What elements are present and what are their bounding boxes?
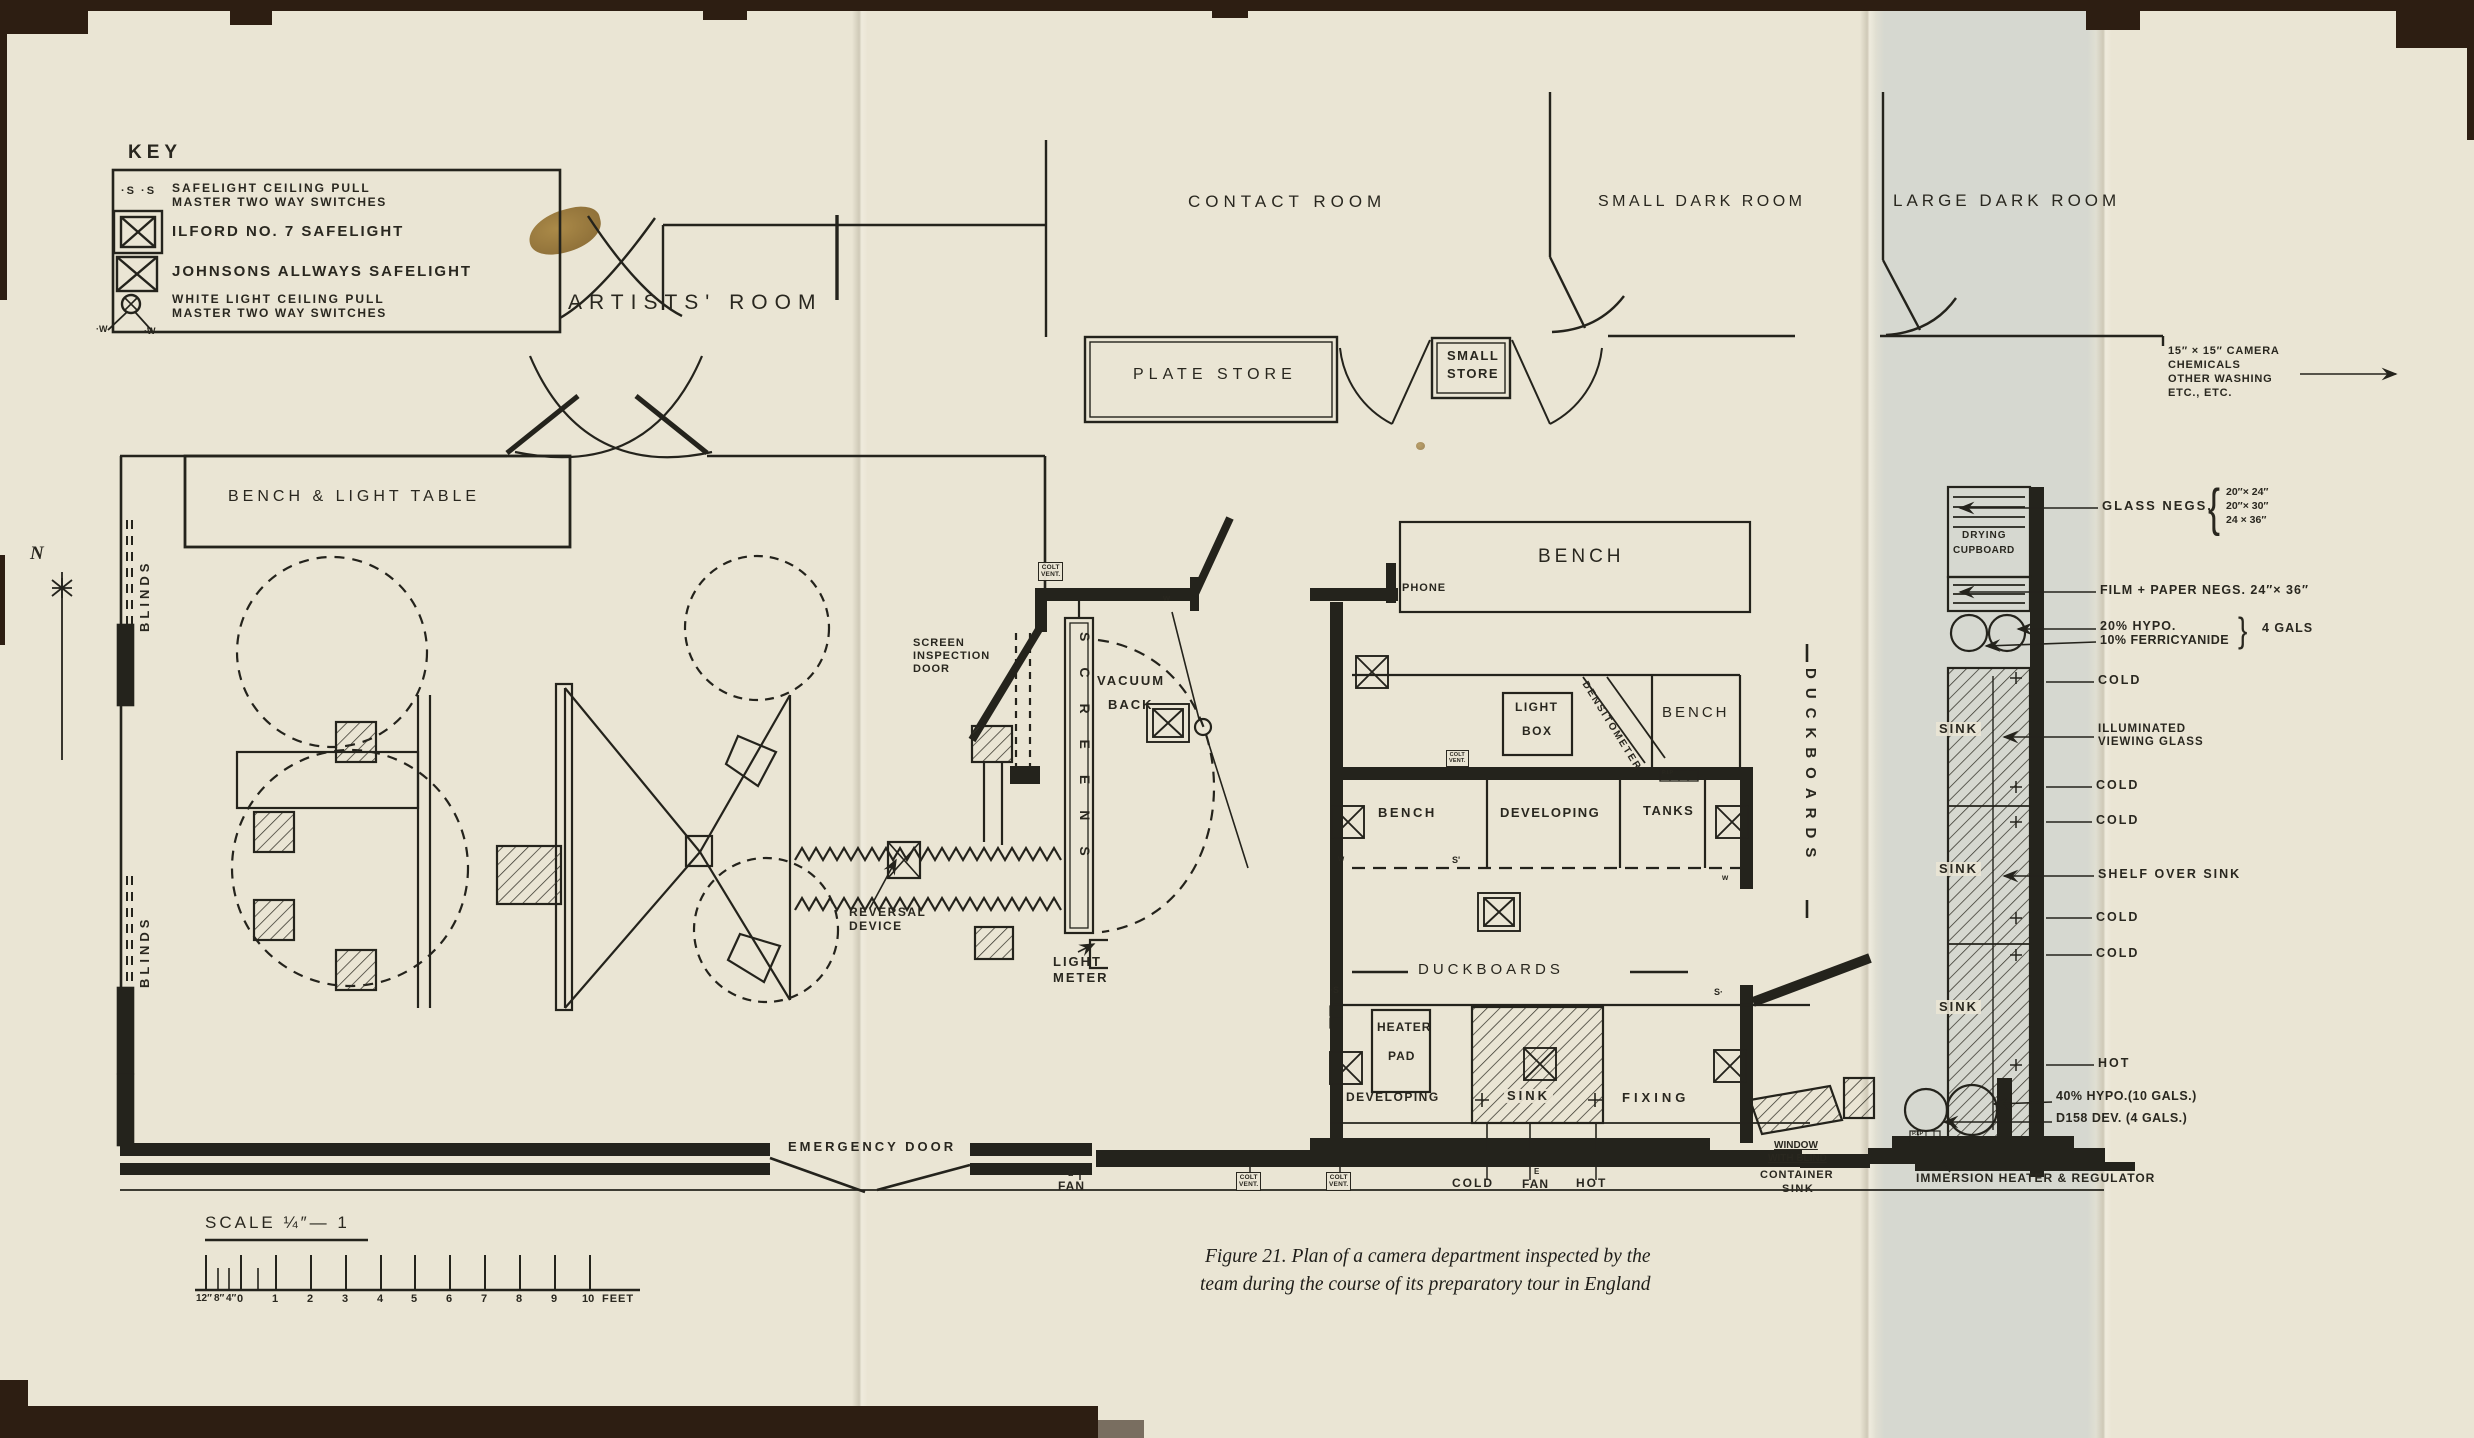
- figure-caption-line1: Figure 21. Plan of a camera department i…: [1205, 1246, 1651, 1267]
- blinds-upper: BLINDS: [138, 528, 154, 632]
- scale-tick: 5: [411, 1294, 417, 1306]
- vacuum-back: VACUUM: [1097, 674, 1165, 688]
- container-sink: CONTAINER: [1760, 1170, 1834, 1182]
- colt-vent-box: COLTVENT.: [1038, 562, 1063, 581]
- note-chemicals: CHEMICALS: [2168, 360, 2241, 372]
- bench-mid: BENCH: [1378, 806, 1437, 820]
- hot-tap: HOT: [1576, 1177, 1607, 1190]
- pipe-box: P.I.P: [1912, 1132, 1923, 1138]
- illuminated-glass-2: VIEWING GLASS: [2098, 736, 2204, 748]
- room-small-store: SMALL: [1447, 349, 1499, 363]
- developing-sink-room: DEVELOPING: [1346, 1091, 1440, 1104]
- colt-vent-box: COLTVENT.: [1326, 1172, 1351, 1191]
- key-switch-symbol: ·S ·S: [121, 186, 156, 198]
- walls-stores: [560, 92, 2163, 424]
- shelf-over-sink: SHELF OVER SINK: [2098, 868, 2241, 882]
- illuminated-glass: ILLUMINATED: [2098, 723, 2186, 735]
- scale-ruler: [195, 1240, 640, 1290]
- bench-top: BENCH: [1538, 547, 1625, 568]
- room-large-dark: LARGE DARK ROOM: [1893, 192, 2120, 210]
- glass-negs: GLASS NEGS.: [2102, 499, 2213, 513]
- scale-tick: 0: [237, 1294, 243, 1306]
- scale-tick: 8″: [214, 1294, 224, 1305]
- room-small-dark: SMALL DARK ROOM: [1598, 193, 1806, 210]
- scale-tick: 12″: [196, 1294, 212, 1305]
- switch-w-small: w: [1338, 855, 1344, 864]
- scale-tick: 10: [582, 1294, 594, 1306]
- room-contact: CONTACT ROOM: [1188, 193, 1386, 211]
- cold-tap: COLD: [1452, 1177, 1494, 1190]
- key-w-mark: ·W: [144, 327, 156, 337]
- pipe-box: P.I.P: [1662, 771, 1673, 777]
- north-label: N: [30, 544, 44, 565]
- film-paper-negs: FILM + PAPER NEGS. 24″× 36″: [2100, 584, 2309, 598]
- light-meter: LIGHT: [1053, 955, 1102, 969]
- note-camera-size: 15″ × 15″ CAMERA: [2168, 346, 2280, 358]
- window-label: WINDOW: [1774, 1141, 1818, 1152]
- fan-e-left: E: [1068, 1170, 1073, 1179]
- door-artists-room-top: [507, 356, 712, 457]
- room-plate-store: PLATE STORE: [1133, 366, 1297, 383]
- light-meter-2: METER: [1053, 971, 1109, 985]
- light-box-2: BOX: [1522, 725, 1553, 738]
- key-johnsons: JOHNSONS ALLWAYS SAFELIGHT: [172, 264, 472, 280]
- cold-3: COLD: [2096, 814, 2139, 828]
- key-ilford: ILFORD NO. 7 SAFELIGHT: [172, 224, 404, 240]
- key-master-switches: MASTER TWO WAY SWITCHES: [172, 196, 387, 209]
- screen-inspection-door-2: INSPECTION: [913, 651, 990, 663]
- scale-title: SCALE ¼″— 1: [205, 1214, 350, 1232]
- brace-hypo: }: [2238, 612, 2247, 650]
- duckboards-horizontal: DUCKBOARDS: [1418, 962, 1564, 978]
- drying-cupboard-2: CUPBOARD: [1953, 546, 2015, 557]
- emergency-door: EMERGENCY DOOR: [788, 1140, 956, 1154]
- screens-label: SCREENS: [1066, 632, 1092, 922]
- scale-tick: 9: [551, 1294, 557, 1306]
- camera-equipment: [232, 556, 1248, 1010]
- fan-left: FAN: [1058, 1180, 1085, 1193]
- right-column-fixtures: [1892, 487, 2135, 1177]
- key-white-light: WHITE LIGHT CEILING PULL: [172, 293, 385, 306]
- room-small-store-2: STORE: [1447, 367, 1499, 381]
- cold-2: COLD: [2096, 779, 2139, 793]
- key-title: KEY: [128, 143, 182, 164]
- drying-cupboard: DRYING: [1962, 531, 2007, 542]
- colt-vent-box: COLTVENT.: [1236, 1172, 1261, 1191]
- developing-tanks: DEVELOPING: [1500, 806, 1600, 820]
- heater-pad: HEATER: [1377, 1021, 1431, 1034]
- switch-s: ·S: [1330, 986, 1339, 996]
- brace-glass-negs: {: [2208, 480, 2220, 536]
- figure-caption-line2: team during the course of its preparator…: [1200, 1274, 1650, 1295]
- switch-w: w: [1163, 594, 1170, 604]
- sink-2: SINK: [1936, 862, 1981, 876]
- switch-w-small: w: [1722, 874, 1728, 883]
- plan-line-art: [0, 0, 2474, 1438]
- reversal-device-2: DEVICE: [849, 920, 903, 933]
- duckboards-vertical: DUCKBOARDS: [1796, 668, 1818, 900]
- key-safelight-pull: SAFELIGHT CEILING PULL: [172, 182, 371, 195]
- scale-tick: 4: [377, 1294, 383, 1306]
- cold-1: COLD: [2098, 674, 2141, 688]
- sink-1: SINK: [1936, 722, 1981, 736]
- scale-tick: 8: [516, 1294, 522, 1306]
- screen-inspection-door-3: DOOR: [913, 664, 950, 676]
- fixing: FIXING: [1622, 1091, 1689, 1105]
- fan-label: FAN: [1522, 1178, 1549, 1191]
- scale-feet: FEET: [602, 1294, 634, 1306]
- blinds-lower: BLINDS: [138, 884, 154, 988]
- four-gals: 4 GALS: [2262, 622, 2313, 636]
- bench-right: BENCH: [1662, 705, 1730, 721]
- vacuum-back-2: BACK: [1108, 698, 1154, 712]
- north-arrow: [52, 572, 72, 760]
- container-sink-2: SINK: [1782, 1184, 1814, 1196]
- scale-tick: 4″: [226, 1294, 236, 1305]
- glass-neg-size-1: 20″× 24″: [2226, 487, 2268, 498]
- colt-vent-box: COLTVENT.: [1446, 750, 1469, 767]
- hypo-40: 40% HYPO.(10 GALS.): [2056, 1090, 2197, 1104]
- cold-4: COLD: [2096, 911, 2139, 925]
- hot-1: HOT: [2098, 1057, 2130, 1071]
- bench-light-table: BENCH & LIGHT TABLE: [228, 488, 480, 505]
- switch-s-prime: S': [1452, 856, 1460, 866]
- scale-tick: 3: [342, 1294, 348, 1306]
- sink-3: SINK: [1936, 1000, 1981, 1014]
- d158-dev: D158 DEV. (4 GALS.): [2056, 1112, 2187, 1126]
- scale-tick: 2: [307, 1294, 313, 1306]
- safelight-symbols: [1147, 656, 1748, 1084]
- screen-inspection-door: SCREEN: [913, 638, 965, 650]
- room-artists: ARTISTS' ROOM: [568, 292, 822, 315]
- note-etc: ETC., ETC.: [2168, 388, 2232, 400]
- sink-mid: SINK: [1504, 1089, 1553, 1103]
- light-box: LIGHT: [1515, 701, 1559, 714]
- heater-pad-2: PAD: [1388, 1050, 1415, 1063]
- hypo-20: 20% HYPO.: [2100, 620, 2176, 634]
- scale-tick: 6: [446, 1294, 452, 1306]
- fan-e: E: [1534, 1168, 1539, 1177]
- glass-neg-size-2: 20″× 30″: [2226, 501, 2268, 512]
- ferricyanide: 10% FERRICYANIDE: [2100, 634, 2229, 648]
- scale-tick: 7: [481, 1294, 487, 1306]
- scanned-floor-plan: KEY ·S ·S SAFELIGHT CEILING PULL MASTER …: [0, 0, 2474, 1438]
- walls-artists-room: [118, 456, 1045, 1145]
- window-blind-label: WITH BLIND: [1768, 1154, 1827, 1165]
- glass-neg-size-3: 24 × 36″: [2226, 515, 2266, 526]
- key-master-switches-2: MASTER TWO WAY SWITCHES: [172, 307, 387, 320]
- phone-label: PHONE: [1402, 583, 1446, 595]
- reversal-device: REVERSAL: [849, 906, 926, 919]
- tanks: TANKS: [1643, 804, 1694, 818]
- key-w-mark: ·W: [96, 325, 108, 335]
- cold-5: COLD: [2096, 947, 2139, 961]
- immersion-heater: IMMERSION HEATER & REGULATOR: [1916, 1172, 2155, 1185]
- switch-s-right: S·: [1714, 988, 1723, 998]
- scale-tick: 1: [272, 1294, 278, 1306]
- note-other-washing: OTHER WASHING: [2168, 374, 2273, 386]
